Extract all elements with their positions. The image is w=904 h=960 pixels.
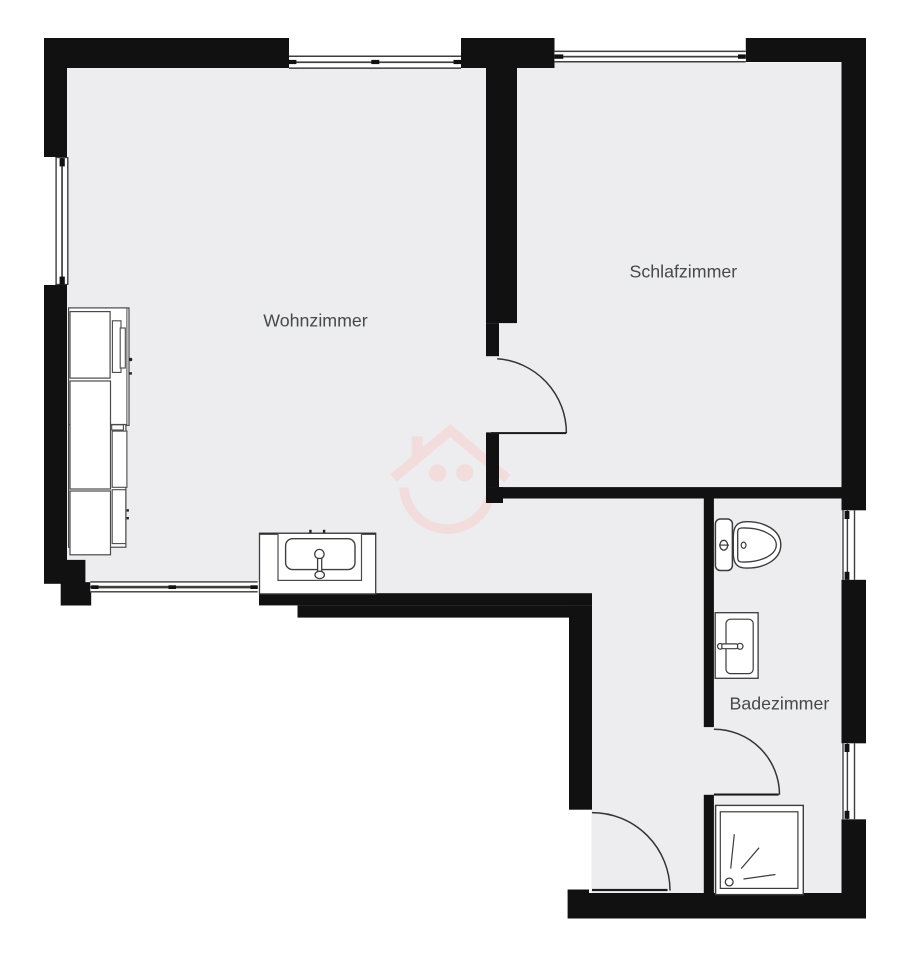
svg-text:Badezimmer: Badezimmer	[730, 694, 830, 714]
svg-text:Schlafzimmer: Schlafzimmer	[630, 262, 738, 282]
svg-text:Wohnzimmer: Wohnzimmer	[263, 311, 367, 331]
